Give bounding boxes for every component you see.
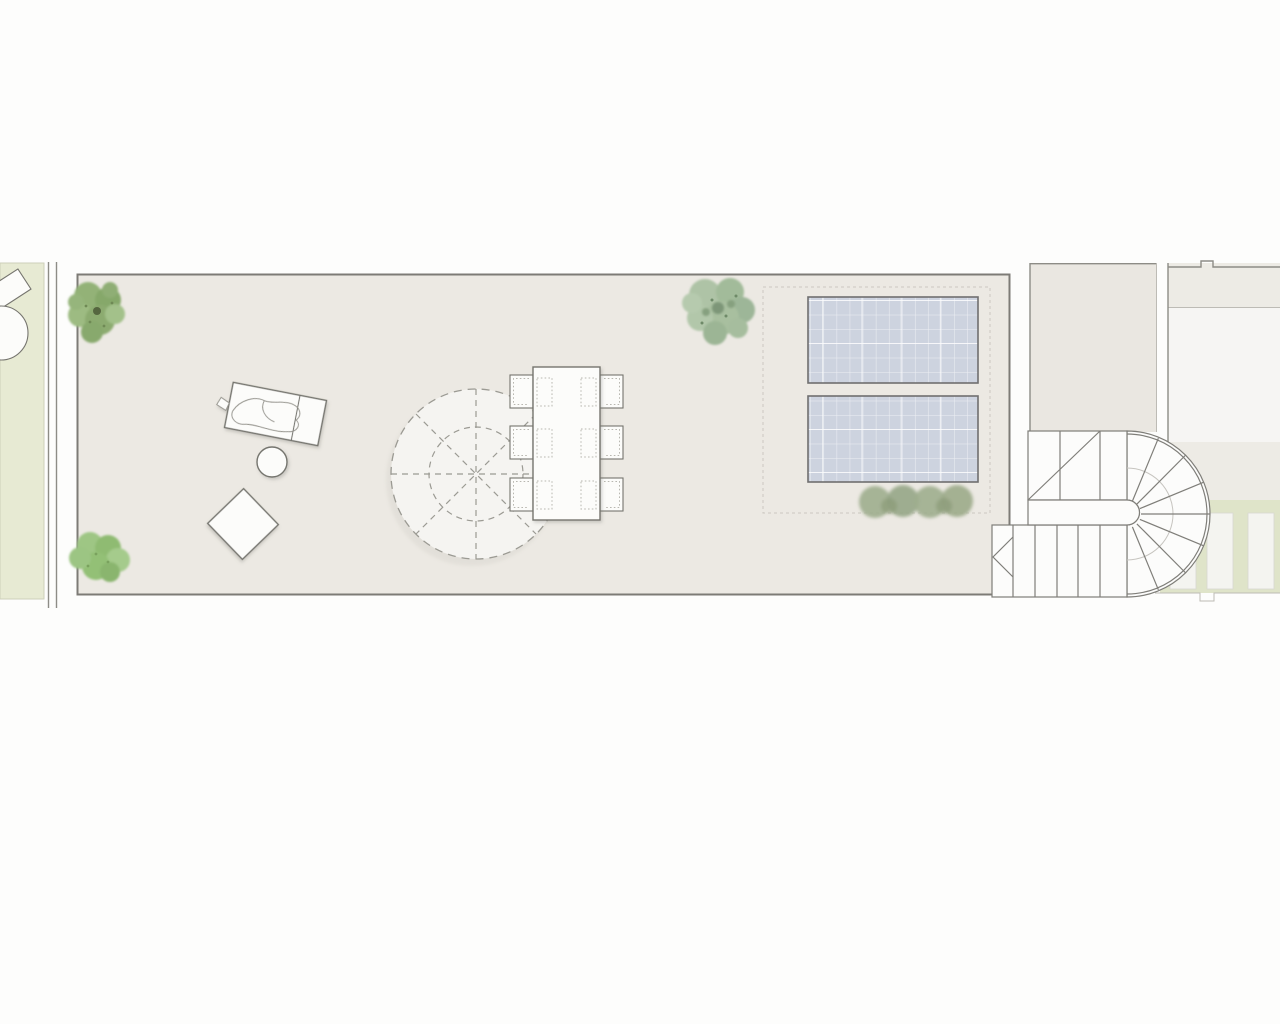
plan-page: roof-terrace architectural floor plan (0, 0, 1280, 1024)
solar-panel-1 (808, 297, 978, 383)
deck-paver (1207, 513, 1233, 589)
garden-strip-left (0, 263, 44, 599)
chair-symbol (600, 478, 623, 511)
tree-trunk-dot (93, 307, 101, 315)
roof-plan-drawing (0, 0, 1280, 1024)
building-room (1168, 307, 1280, 442)
chair-symbol (510, 375, 533, 408)
building-top-band (1168, 263, 1280, 307)
dining-set (510, 367, 623, 520)
party-wall (49, 262, 57, 608)
chair-symbol (510, 426, 533, 459)
u-shaped-switchback-stair (992, 431, 1210, 597)
chair-symbol (600, 375, 623, 408)
round-side-table (257, 447, 287, 477)
plot-boundary-notch (1155, 593, 1280, 601)
deck-paver (1248, 513, 1274, 589)
solar-panel-2 (808, 396, 978, 482)
stair-lower-flight (992, 525, 1127, 597)
neighbor-block-beige (1030, 263, 1157, 432)
stair-upper-flight (1028, 431, 1127, 500)
dining-table (533, 367, 600, 520)
chair-symbol (510, 478, 533, 511)
stair-central-rail (1028, 500, 1140, 525)
chair-symbol (600, 426, 623, 459)
